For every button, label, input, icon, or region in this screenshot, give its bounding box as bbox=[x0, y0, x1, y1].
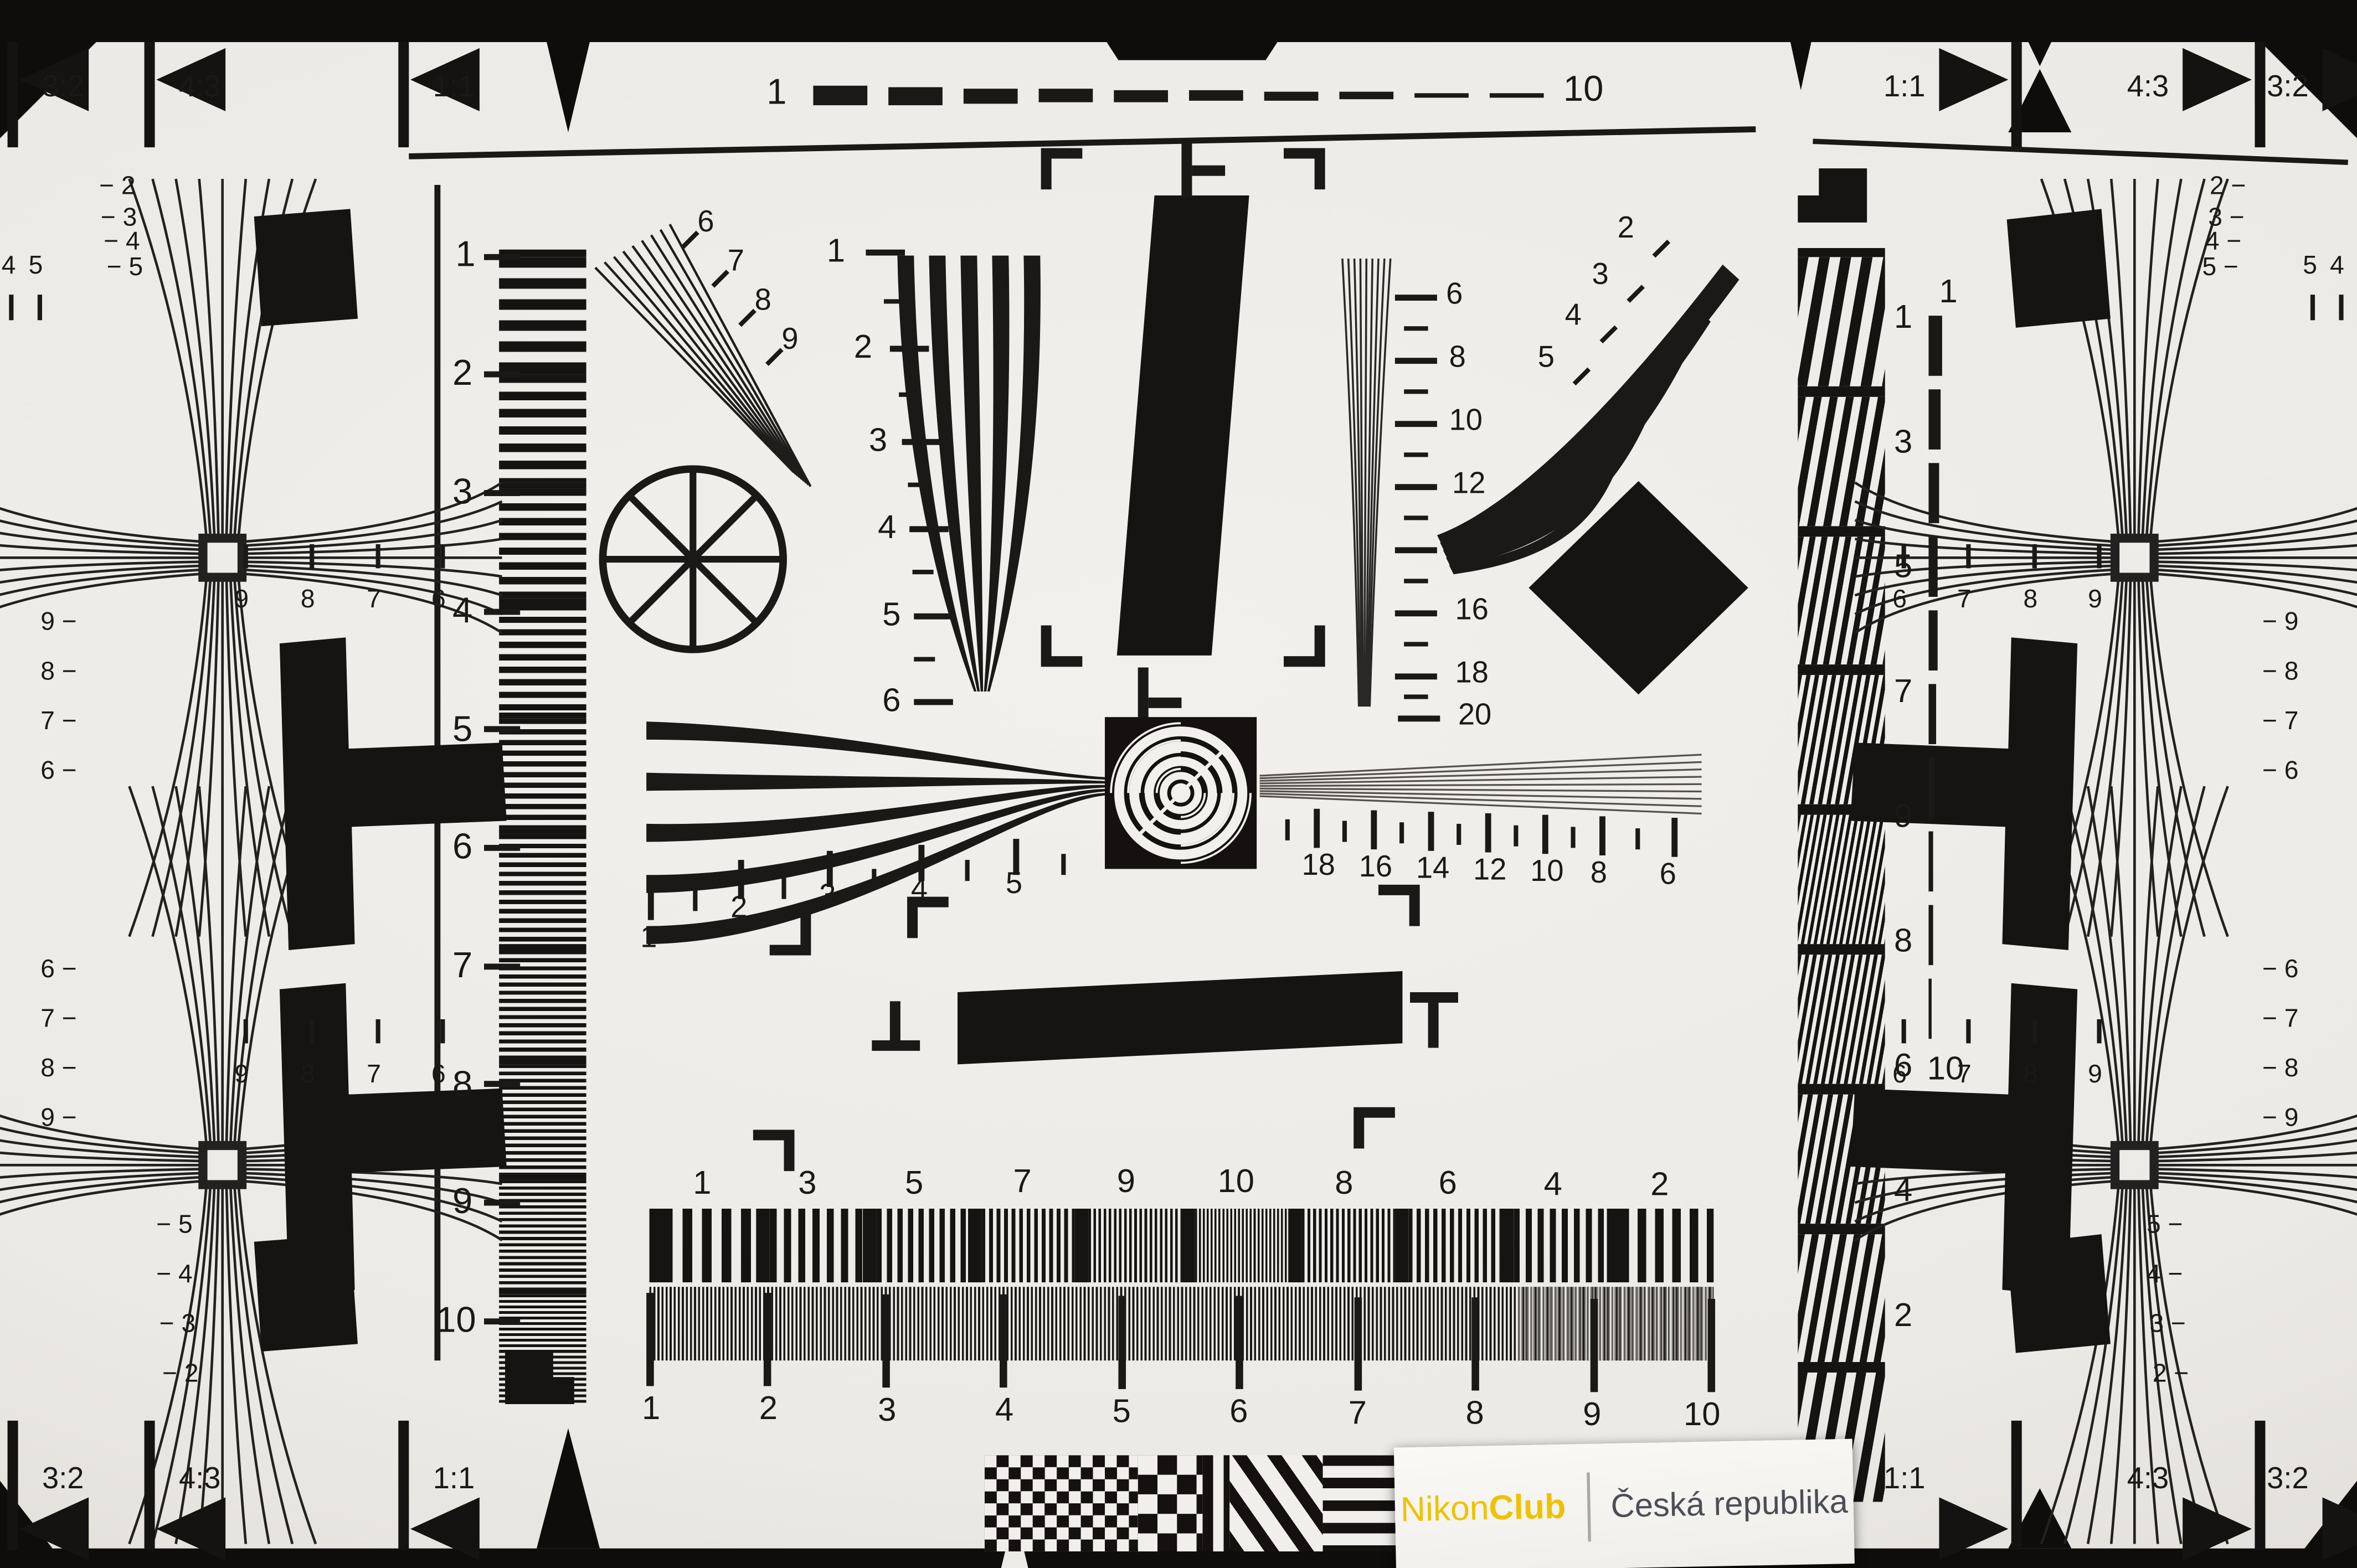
slanted-frame-lines bbox=[409, 130, 2348, 163]
tl-row-7: 7 bbox=[367, 586, 381, 612]
block-label-10: 10 bbox=[1218, 1165, 1254, 1198]
bl-wedge-2: − 2 bbox=[162, 1360, 198, 1386]
left-scale-8: 8 bbox=[452, 1067, 472, 1103]
aspect-label-4-3: 4:3 bbox=[179, 1464, 220, 1494]
tr-stack-6: − 6 bbox=[2262, 757, 2298, 783]
format-bar bbox=[145, 42, 155, 147]
tl-row-9: 9 bbox=[234, 586, 249, 612]
bl-stack-9: 9 − bbox=[40, 1105, 76, 1131]
right-scale-3: 3 bbox=[1894, 425, 1912, 458]
format-bar bbox=[398, 1421, 409, 1550]
tl-row-8: 8 bbox=[301, 586, 315, 612]
hwedge-2: 2 bbox=[730, 893, 747, 923]
format-triangle-icon bbox=[2183, 1497, 2252, 1560]
tl-stack-7: 7 − bbox=[40, 708, 76, 734]
br-wedge-2: 2 − bbox=[2153, 1360, 2189, 1386]
right-scale-8: 8 bbox=[1894, 925, 1912, 958]
aspect-label-1-1: 1:1 bbox=[433, 1464, 475, 1494]
fwedge-18: 18 bbox=[1455, 658, 1488, 688]
card-divider bbox=[1586, 1472, 1591, 1541]
fwedge-12: 12 bbox=[1452, 469, 1485, 499]
format-bar bbox=[2011, 42, 2022, 147]
fwedge-16: 16 bbox=[1455, 595, 1488, 625]
hwedge-1: 1 bbox=[640, 923, 657, 953]
format-bar bbox=[8, 42, 18, 147]
br-row-8: 8 bbox=[2023, 1061, 2037, 1087]
tr-row-8: 8 bbox=[2023, 586, 2037, 612]
br-row-6: 6 bbox=[1892, 1061, 1907, 1087]
tl-stack-9: 9 − bbox=[40, 609, 76, 635]
format-triangle-icon bbox=[2323, 48, 2357, 111]
aspect-label-4-3: 4:3 bbox=[179, 72, 220, 102]
tr-wedge-4: 4 − bbox=[2205, 229, 2241, 254]
right-dashed-scale-top: 1 bbox=[1939, 275, 1957, 308]
format-triangle-icon bbox=[1939, 1497, 2008, 1560]
hwedge-3: 3 bbox=[819, 881, 836, 911]
vwedge-2: 2 bbox=[854, 331, 872, 364]
hwedge-4: 4 bbox=[911, 875, 928, 905]
tl-stack-6: 6 − bbox=[40, 757, 76, 783]
block-label-6: 6 bbox=[1439, 1167, 1457, 1200]
br-stack-7: − 7 bbox=[2262, 1005, 2298, 1031]
aspect-label-3-2: 3:2 bbox=[42, 1464, 84, 1494]
left-scale-5: 5 bbox=[452, 713, 472, 749]
right-scale-1: 1 bbox=[1894, 301, 1912, 334]
left-scale-2: 2 bbox=[452, 357, 472, 393]
fwedge-10: 10 bbox=[1449, 406, 1483, 436]
dfan-6: 6 bbox=[697, 208, 714, 238]
block-label-5: 5 bbox=[905, 1167, 923, 1200]
right-scale-2: 2 bbox=[1894, 1299, 1912, 1332]
format-bar bbox=[398, 42, 409, 147]
left-scale-4: 4 bbox=[452, 594, 472, 630]
format-triangle-icon bbox=[19, 1497, 89, 1560]
top-ruler-start: 1 bbox=[766, 75, 786, 111]
right-scale-5: 5 bbox=[1894, 550, 1912, 584]
rruler-6: 6 bbox=[1660, 860, 1676, 890]
bottom-ruler-10: 10 bbox=[1684, 1398, 1720, 1431]
left-scale-7: 7 bbox=[452, 948, 472, 984]
rruler-14: 14 bbox=[1416, 854, 1449, 884]
tl-row-6: 6 bbox=[431, 586, 446, 612]
rruler-12: 12 bbox=[1473, 855, 1506, 885]
format-bar bbox=[2255, 42, 2265, 147]
format-triangle-icon bbox=[410, 1497, 480, 1560]
vertical-hyperbolic-wedge bbox=[897, 256, 1040, 692]
vwedge-3: 3 bbox=[869, 424, 887, 457]
chart-line-art bbox=[0, 0, 2357, 1568]
rruler-18: 18 bbox=[1302, 851, 1335, 881]
left-scale-6: 6 bbox=[452, 830, 472, 866]
bl-row-9: 9 bbox=[234, 1061, 249, 1087]
aspect-label-3-2: 3:2 bbox=[42, 72, 84, 102]
aspect-label-1-1: 1:1 bbox=[1883, 72, 1925, 102]
test-chart: 3:2 4:3 1:1 1:1 4:3 3:2 3:2 4:3 1:1 1:1 … bbox=[0, 0, 2357, 1568]
format-bar bbox=[8, 1421, 18, 1550]
aspect-label-1-1: 1:1 bbox=[1883, 1464, 1925, 1494]
bottom-ruler-2: 2 bbox=[759, 1392, 778, 1425]
bottom-block-brackets bbox=[753, 1112, 1395, 1171]
brand-nikon: Nikon bbox=[1400, 1488, 1489, 1530]
fwedge-14: 14 bbox=[1452, 532, 1485, 562]
cfan-4: 4 bbox=[1565, 301, 1582, 331]
cfan-2: 2 bbox=[1618, 214, 1634, 244]
br-row-9: 9 bbox=[2088, 1061, 2102, 1087]
checkerboard-pattern-block bbox=[985, 1455, 1398, 1551]
bottom-ruler-9: 9 bbox=[1583, 1398, 1601, 1431]
top-ruler-end: 10 bbox=[1563, 72, 1603, 108]
dfan-7: 7 bbox=[728, 246, 744, 276]
format-triangle-icon bbox=[2183, 48, 2252, 111]
dfan-9: 9 bbox=[781, 324, 798, 354]
photo-of-test-chart: 3:2 4:3 1:1 1:1 4:3 3:2 3:2 4:3 1:1 1:1 … bbox=[0, 0, 2357, 1568]
aspect-label-3-2: 3:2 bbox=[2267, 72, 2308, 102]
cfan-5: 5 bbox=[1538, 343, 1555, 373]
spoked-wheel-pattern bbox=[603, 469, 783, 649]
tr-row-7: 7 bbox=[1957, 586, 1972, 612]
diagonal-fan-wedge bbox=[595, 224, 811, 487]
bottom-ruler-8: 8 bbox=[1465, 1396, 1484, 1430]
concentric-circle-target bbox=[1105, 717, 1257, 869]
brand-club: Club bbox=[1489, 1487, 1566, 1529]
tr-stack-8: − 8 bbox=[2262, 658, 2298, 684]
right-scale-7: 7 bbox=[1894, 675, 1912, 708]
left-scale-9: 9 bbox=[452, 1185, 472, 1221]
br-row-7: 7 bbox=[1957, 1061, 1972, 1087]
nikonclub-card: NikonClub Česká republika bbox=[1394, 1439, 1855, 1568]
aspect-label-3-2: 3:2 bbox=[2267, 1464, 2308, 1494]
block-label-8: 8 bbox=[1335, 1167, 1353, 1200]
fwedge-6: 6 bbox=[1446, 280, 1463, 310]
bottom-ruler-7: 7 bbox=[1349, 1396, 1367, 1430]
block-label-9: 9 bbox=[1117, 1165, 1135, 1198]
bl-stack-8: 8 − bbox=[40, 1055, 76, 1081]
left-scale-10: 10 bbox=[436, 1303, 476, 1339]
aspect-label-1-1: 1:1 bbox=[433, 72, 475, 102]
right-scale-4: 4 bbox=[1894, 1174, 1912, 1208]
bl-stack-6: 6 − bbox=[40, 956, 76, 982]
format-triangle-icon bbox=[1939, 48, 2008, 111]
bottom-ruler-6: 6 bbox=[1229, 1395, 1248, 1428]
bl-wedge-5: − 5 bbox=[156, 1211, 192, 1237]
tl-pair-5: 5 bbox=[29, 252, 43, 278]
bottom-ruler-4: 4 bbox=[995, 1394, 1013, 1427]
br-stack-8: − 8 bbox=[2262, 1055, 2298, 1081]
gray-horizontal-fan bbox=[1260, 755, 1702, 813]
brand-region: Česká republika bbox=[1610, 1482, 1848, 1525]
br-wedge-3: 3 − bbox=[2149, 1311, 2185, 1337]
aspect-label-4-3: 4:3 bbox=[2127, 1464, 2169, 1494]
right-scale-9: 9 bbox=[1894, 800, 1912, 833]
bottom-ruler-5: 5 bbox=[1113, 1395, 1131, 1428]
tr-wedge-3: 3 − bbox=[2208, 204, 2244, 230]
rruler-10: 10 bbox=[1530, 857, 1563, 887]
fine-vertical-wedge bbox=[1342, 259, 1391, 706]
format-bar bbox=[2255, 1421, 2265, 1550]
block-label-2: 2 bbox=[1650, 1168, 1669, 1201]
left-scale-1: 1 bbox=[455, 238, 475, 274]
bottom-ruler-1: 1 bbox=[642, 1392, 660, 1425]
tr-pair-4: 4 bbox=[2330, 252, 2344, 278]
vwedge-4: 4 bbox=[878, 511, 896, 544]
hwedge-5: 5 bbox=[1006, 869, 1022, 899]
br-wedge-4: 4 − bbox=[2147, 1261, 2183, 1287]
bl-row-6: 6 bbox=[431, 1061, 446, 1087]
bl-stack-7: 7 − bbox=[40, 1005, 76, 1031]
tl-pair-4: 4 bbox=[2, 252, 16, 278]
tl-wedge-5: − 5 bbox=[107, 254, 143, 280]
block-label-7: 7 bbox=[1013, 1165, 1031, 1198]
aspect-label-4-3: 4:3 bbox=[2127, 72, 2169, 102]
left-scale-3: 3 bbox=[452, 475, 472, 511]
tr-stack-7: − 7 bbox=[2262, 708, 2298, 734]
br-wedge-5: 5 − bbox=[2147, 1211, 2183, 1237]
tl-wedge-2: − 2 bbox=[99, 173, 135, 198]
tr-row-6: 6 bbox=[1892, 586, 1907, 612]
tr-wedge-5: 5 − bbox=[2202, 254, 2238, 280]
tr-row-9: 9 bbox=[2088, 586, 2102, 612]
tr-wedge-2: 2 − bbox=[2210, 173, 2246, 198]
vwedge-6: 6 bbox=[882, 684, 900, 717]
rruler-8: 8 bbox=[1591, 858, 1607, 888]
tr-stack-9: − 9 bbox=[2262, 609, 2298, 635]
bl-row-8: 8 bbox=[301, 1061, 315, 1087]
tl-stack-8: 8 − bbox=[40, 658, 76, 684]
bl-wedge-4: − 4 bbox=[156, 1261, 192, 1287]
dfan-8: 8 bbox=[755, 286, 771, 316]
br-stack-9: − 9 bbox=[2262, 1105, 2298, 1131]
bl-wedge-3: − 3 bbox=[159, 1311, 195, 1337]
fwedge-8: 8 bbox=[1449, 343, 1466, 373]
tilted-vertical-bar-group bbox=[1046, 141, 1320, 721]
format-bar bbox=[145, 1421, 155, 1550]
block-label-1: 1 bbox=[693, 1167, 711, 1200]
bl-row-7: 7 bbox=[367, 1061, 381, 1087]
block-label-4: 4 bbox=[1544, 1168, 1562, 1201]
tl-wedge-4: − 4 bbox=[104, 229, 140, 254]
horizontal-hyperbolic-wedge bbox=[646, 721, 1107, 944]
bottom-ruler-3: 3 bbox=[878, 1394, 896, 1427]
vwedge-5: 5 bbox=[882, 599, 900, 632]
format-triangle-icon bbox=[156, 1497, 225, 1560]
cfan-3: 3 bbox=[1592, 260, 1608, 290]
br-stack-6: − 6 bbox=[2262, 956, 2298, 982]
format-triangle-icon bbox=[2323, 1497, 2357, 1560]
vwedge-1: 1 bbox=[827, 235, 845, 268]
format-bar bbox=[2011, 1421, 2022, 1550]
tilted-horizontal-bar-group bbox=[770, 890, 1458, 1064]
block-label-3: 3 bbox=[798, 1167, 816, 1200]
tr-pair-5: 5 bbox=[2303, 252, 2317, 278]
tl-wedge-3: − 3 bbox=[101, 204, 137, 230]
rruler-16: 16 bbox=[1359, 853, 1392, 883]
fwedge-20: 20 bbox=[1458, 700, 1491, 730]
